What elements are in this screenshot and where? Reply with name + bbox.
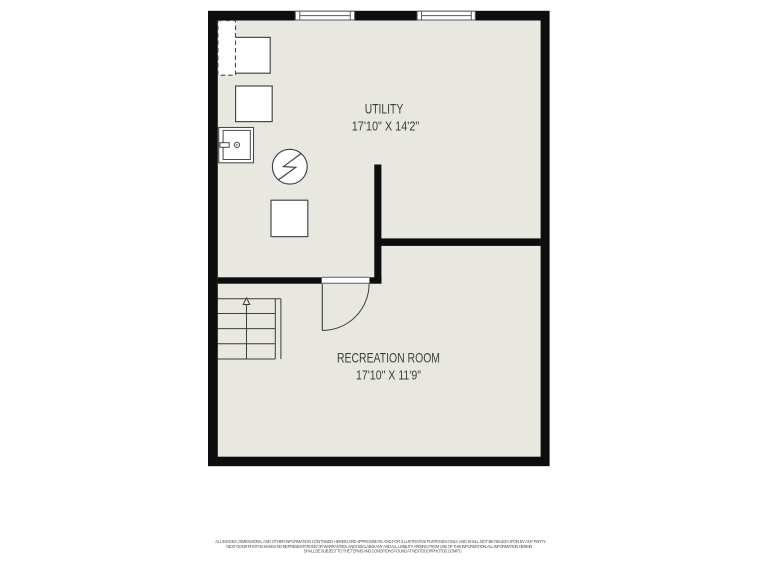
svg-text:SHALL BE SUBJECT TO THE TERMS: SHALL BE SUBJECT TO THE TERMS AND CONDIT… — [304, 549, 462, 554]
svg-text:RECREATION ROOM: RECREATION ROOM — [337, 350, 440, 365]
svg-text:UTILITY: UTILITY — [365, 102, 404, 117]
svg-text:17'10" X 14'2": 17'10" X 14'2" — [352, 119, 420, 134]
svg-text:17'10" X 11'9": 17'10" X 11'9" — [356, 367, 421, 382]
